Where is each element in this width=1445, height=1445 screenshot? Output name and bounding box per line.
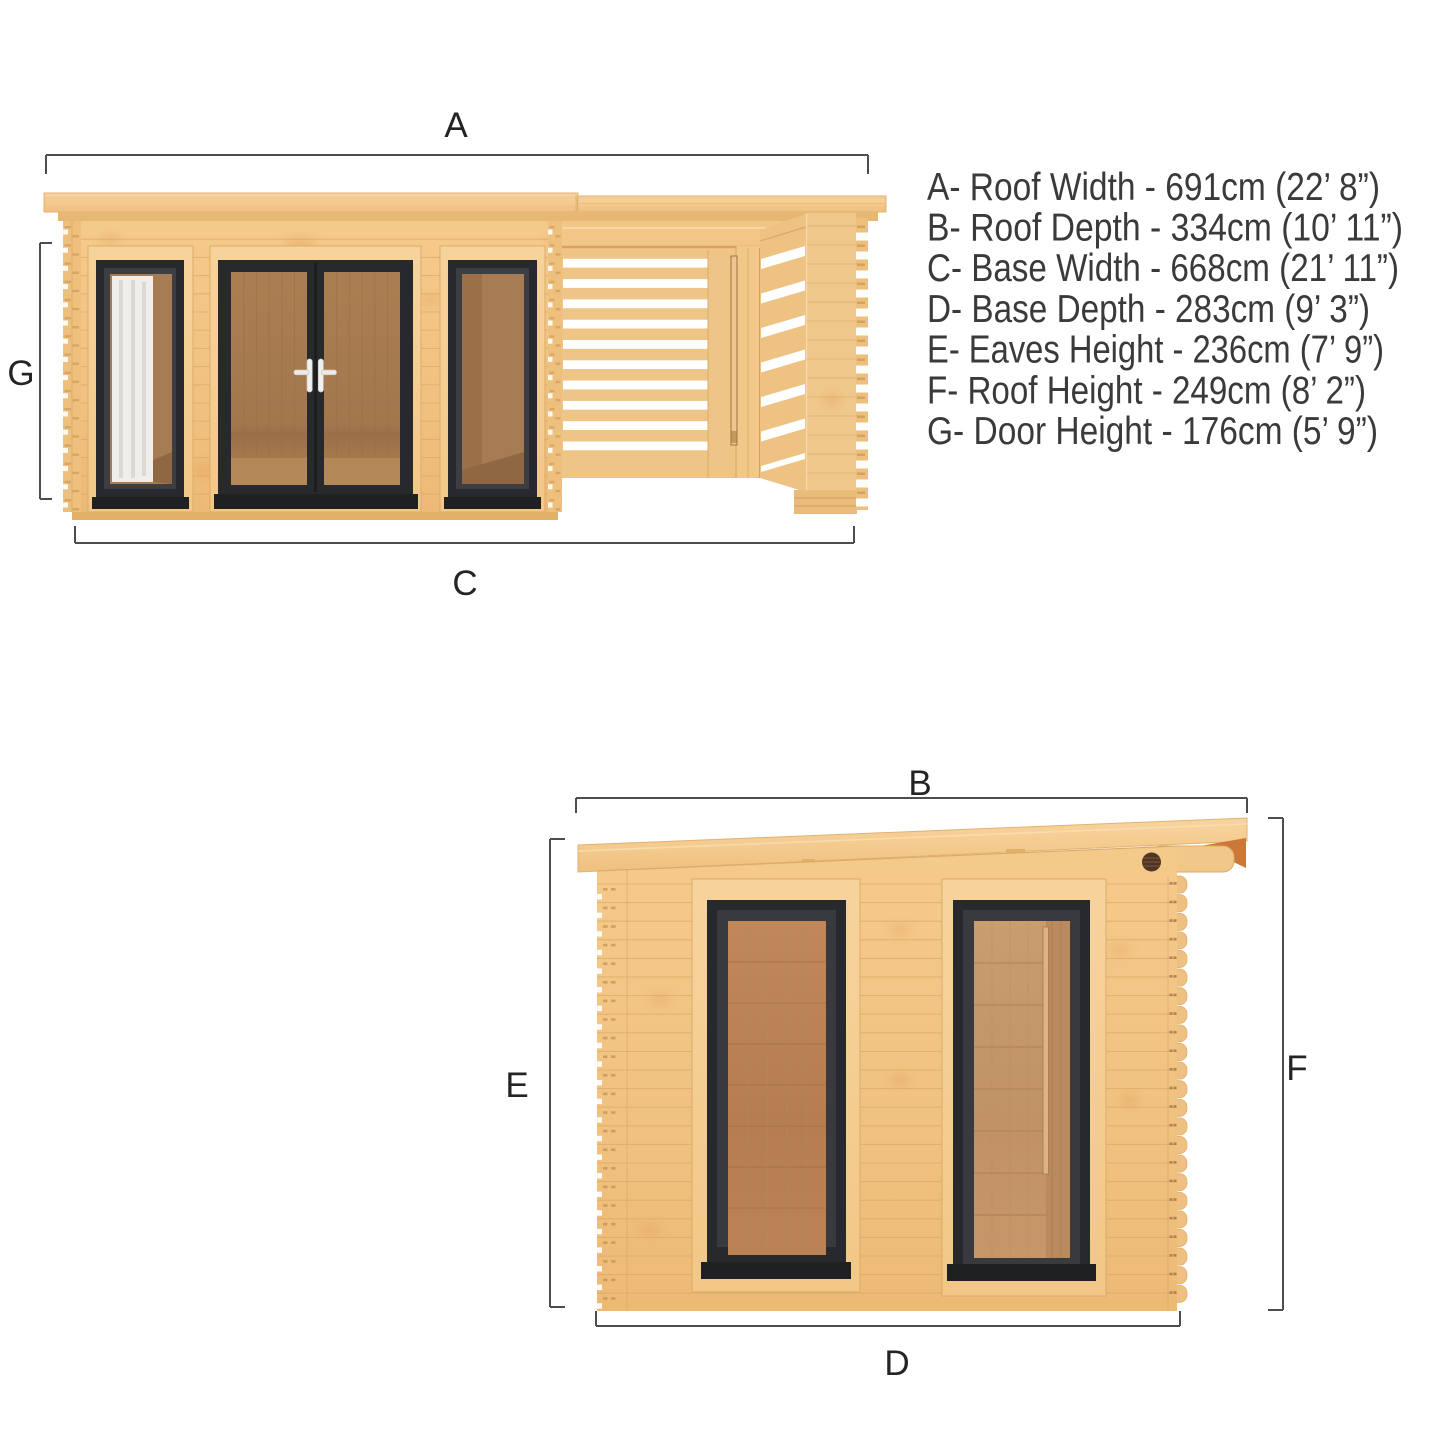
svg-text:F: F bbox=[1286, 1049, 1307, 1088]
svg-text:F- Roof Height - 249cm (8’ 2”): F- Roof Height - 249cm (8’ 2”) bbox=[927, 369, 1366, 412]
svg-text:A- Roof Width - 691cm (22’ 8”): A- Roof Width - 691cm (22’ 8”) bbox=[927, 166, 1380, 209]
svg-text:G: G bbox=[7, 354, 34, 393]
svg-text:D: D bbox=[884, 1344, 909, 1383]
svg-text:B- Roof Depth - 334cm (10’ 11”: B- Roof Depth - 334cm (10’ 11”) bbox=[927, 207, 1403, 250]
svg-text:C- Base Width - 668cm (21’ 11”: C- Base Width - 668cm (21’ 11”) bbox=[927, 247, 1399, 290]
svg-text:D- Base Depth - 283cm (9’ 3”): D- Base Depth - 283cm (9’ 3”) bbox=[927, 288, 1370, 331]
svg-text:E: E bbox=[505, 1066, 528, 1105]
svg-text:A: A bbox=[444, 106, 468, 145]
svg-text:G- Door Height - 176cm (5’ 9”): G- Door Height - 176cm (5’ 9”) bbox=[927, 410, 1378, 453]
svg-text:B: B bbox=[908, 764, 931, 803]
svg-text:C: C bbox=[452, 564, 477, 603]
svg-text:E- Eaves Height - 236cm (7’ 9”: E- Eaves Height - 236cm (7’ 9”) bbox=[927, 329, 1384, 372]
